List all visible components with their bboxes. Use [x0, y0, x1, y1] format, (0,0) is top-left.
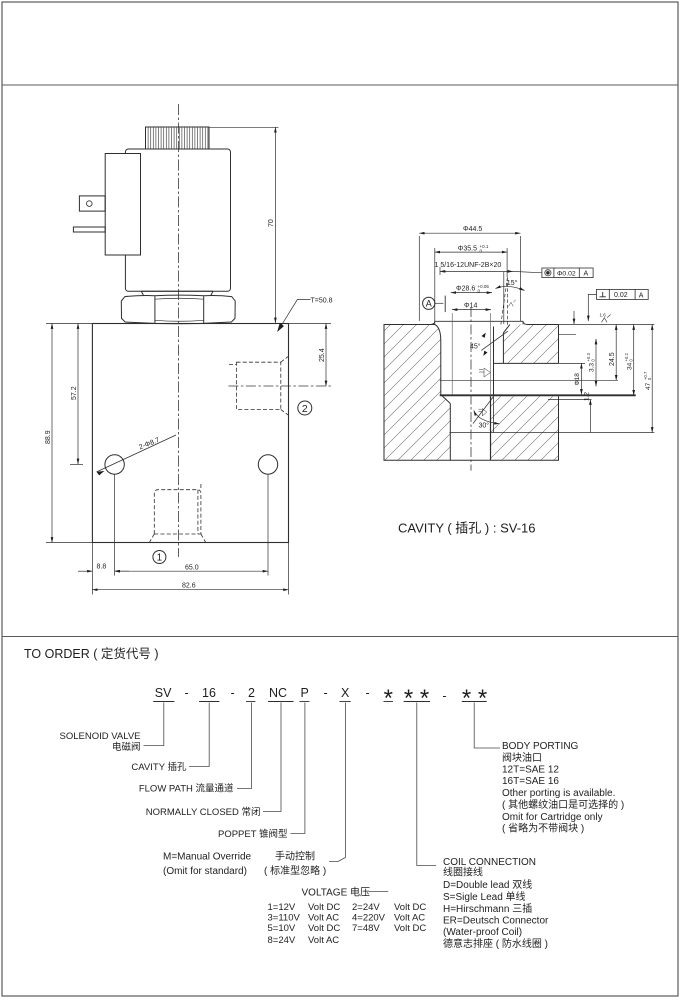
svg-text:BODY PORTING: BODY PORTING	[502, 741, 579, 752]
svg-text:SOLENOID VALVE: SOLENOID VALVE	[60, 731, 141, 742]
svg-text:A: A	[584, 271, 589, 278]
svg-text:7=48V: 7=48V	[352, 923, 380, 934]
svg-text:1=12V: 1=12V	[268, 902, 296, 913]
svg-text:8=24V: 8=24V	[268, 935, 296, 946]
svg-text:5=10V: 5=10V	[268, 923, 296, 934]
svg-text:(Water-proof Coil): (Water-proof Coil)	[443, 927, 522, 938]
svg-text:*: *	[478, 685, 487, 712]
svg-text:Volt AC: Volt AC	[308, 913, 339, 924]
svg-text:Other porting is available.: Other porting is available.	[502, 788, 615, 799]
svg-text:34: 34	[627, 362, 634, 370]
svg-text:P: P	[301, 686, 309, 700]
svg-text:NORMALLY CLOSED 常闭: NORMALLY CLOSED 常闭	[146, 806, 261, 818]
svg-text:*: *	[420, 685, 429, 712]
svg-text:( 省略为不带阀块 ): ( 省略为不带阀块 )	[502, 822, 584, 835]
svg-text:8.8: 8.8	[97, 564, 107, 571]
svg-text:Volt DC: Volt DC	[394, 923, 426, 934]
svg-text:16T=SAE 16: 16T=SAE 16	[502, 776, 559, 787]
svg-text:Volt DC: Volt DC	[308, 902, 340, 913]
svg-text:NC: NC	[269, 686, 287, 700]
svg-text:CAVITY ( 插孔 ) : SV-16: CAVITY ( 插孔 ) : SV-16	[398, 521, 536, 536]
svg-text:1 5/16-12UNF-2B×20: 1 5/16-12UNF-2B×20	[435, 262, 502, 269]
svg-text:3=110V: 3=110V	[268, 913, 301, 924]
svg-text:30°: 30°	[479, 422, 490, 430]
svg-text:2: 2	[302, 403, 308, 415]
svg-text:25.4: 25.4	[319, 348, 326, 362]
svg-text:( 标准型忽略 ): ( 标准型忽略 )	[264, 864, 326, 877]
svg-text:阀块油口: 阀块油口	[502, 751, 542, 764]
svg-text:Φ14: Φ14	[464, 302, 477, 309]
svg-text:-: -	[185, 686, 189, 700]
svg-text:Φ0.02: Φ0.02	[557, 270, 576, 277]
svg-text:德意志排座 ( 防水线圈 ): 德意志排座 ( 防水线圈 )	[443, 937, 548, 950]
svg-text:24.5: 24.5	[609, 352, 616, 366]
svg-text:A: A	[426, 299, 432, 309]
svg-text:2=24V: 2=24V	[352, 902, 380, 913]
svg-text:Φ35.5: Φ35.5	[458, 245, 477, 252]
svg-text:A: A	[639, 292, 644, 299]
svg-text:VOLTAGE 电压: VOLTAGE 电压	[302, 886, 371, 899]
svg-text:(Omit for standard): (Omit for standard)	[163, 866, 247, 877]
svg-text:1.2: 1.2	[584, 392, 591, 401]
svg-text:M=Manual Override: M=Manual Override	[163, 852, 252, 863]
svg-text:45°: 45°	[470, 343, 481, 351]
svg-text:TO ORDER ( 定货代号 ): TO ORDER ( 定货代号 )	[24, 646, 159, 661]
svg-text:*: *	[462, 685, 471, 712]
svg-text:Φ18: Φ18	[574, 373, 581, 386]
svg-text:Volt AC: Volt AC	[308, 935, 339, 946]
svg-text:88.9: 88.9	[45, 430, 52, 444]
svg-text:12T=SAE 12: 12T=SAE 12	[502, 765, 559, 776]
svg-text:15°: 15°	[507, 279, 518, 287]
svg-text:T=50.8: T=50.8	[311, 297, 333, 304]
svg-text:-: -	[231, 686, 235, 700]
svg-text:47: 47	[645, 382, 652, 390]
svg-text:CAVITY 插孔: CAVITY 插孔	[131, 761, 187, 773]
svg-text:( 其他螺纹油口是可选择的 ): ( 其他螺纹油口是可选择的 )	[502, 798, 624, 811]
svg-text:手动控制: 手动控制	[275, 850, 315, 863]
svg-text:SV: SV	[155, 686, 172, 700]
svg-text:Φ44.5: Φ44.5	[463, 226, 482, 233]
svg-text:FLOW PATH 流量通道: FLOW PATH 流量通道	[139, 783, 234, 795]
svg-text:Volt DC: Volt DC	[308, 923, 340, 934]
svg-text:Volt AC: Volt AC	[394, 913, 425, 924]
svg-text:2: 2	[248, 686, 255, 700]
svg-text:Omit for Cartridge only: Omit for Cartridge only	[502, 812, 603, 823]
svg-text:*: *	[384, 685, 393, 712]
svg-text:-: -	[324, 686, 328, 700]
svg-text:70: 70	[268, 219, 275, 227]
svg-text:POPPET 锥阀型: POPPET 锥阀型	[218, 828, 288, 840]
svg-text:-: -	[442, 689, 446, 703]
svg-text:D=Double lead 双线: D=Double lead 双线	[443, 878, 532, 891]
svg-text:1: 1	[157, 553, 163, 564]
svg-text:-: -	[366, 686, 370, 700]
svg-text:16: 16	[202, 686, 216, 700]
svg-text:*: *	[404, 685, 413, 712]
svg-text:57.2: 57.2	[71, 386, 78, 400]
svg-text:H=Hirschmann 三插: H=Hirschmann 三插	[443, 902, 532, 915]
svg-text:S=Sigle Lead 单线: S=Sigle Lead 单线	[443, 890, 526, 903]
svg-text:Volt DC: Volt DC	[394, 902, 426, 913]
svg-text:电磁阀: 电磁阀	[112, 741, 141, 753]
svg-text:Φ28.6: Φ28.6	[456, 286, 475, 293]
svg-text:0.02: 0.02	[614, 292, 628, 299]
svg-text:3.3: 3.3	[589, 363, 596, 372]
svg-text:COIL CONNECTION: COIL CONNECTION	[443, 857, 536, 868]
svg-text:1.6: 1.6	[600, 313, 607, 318]
svg-text:82.6: 82.6	[182, 583, 196, 590]
svg-text:65.0: 65.0	[185, 565, 199, 572]
svg-text:线圈接线: 线圈接线	[443, 866, 483, 879]
svg-text:X: X	[341, 686, 350, 700]
svg-text:4=220V: 4=220V	[352, 913, 386, 924]
svg-text:ER=Deutsch Connector: ER=Deutsch Connector	[443, 916, 549, 927]
